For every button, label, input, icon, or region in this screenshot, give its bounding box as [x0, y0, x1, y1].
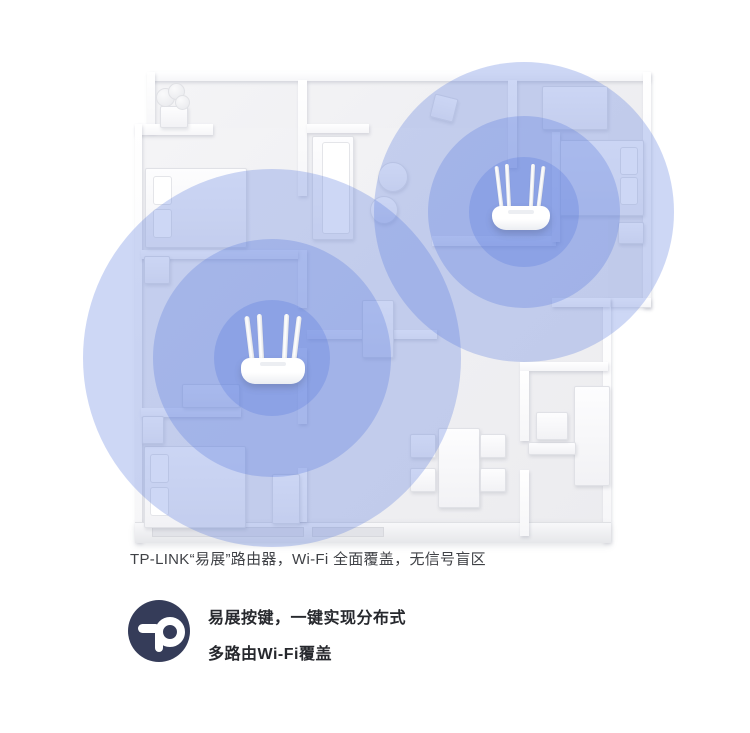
router-antenna-icon	[257, 314, 265, 362]
router-antenna-icon	[536, 166, 545, 208]
router-led-strip	[260, 362, 286, 366]
router-device-2	[492, 164, 550, 230]
pillow	[620, 147, 638, 175]
wardrobe	[542, 86, 608, 130]
page: { "caption": { "text": "TP-LINK“易展”路由器，W…	[0, 0, 750, 733]
router-antenna-icon	[282, 314, 290, 362]
wall-hall-1	[298, 80, 307, 196]
wall-outer-step	[610, 298, 651, 307]
dining-chair	[480, 468, 506, 492]
router-device-1	[241, 314, 305, 384]
pillow	[620, 177, 638, 205]
kitchen-counter	[528, 442, 576, 455]
balcony-window-2	[312, 527, 384, 537]
pouf	[378, 162, 408, 192]
router-body	[492, 206, 550, 230]
wall-kitchen-west-2	[520, 470, 529, 536]
dining-chair	[480, 434, 506, 458]
pillow	[150, 487, 169, 516]
wall-outer-right-upper	[643, 72, 651, 308]
wall-router-ledge	[432, 236, 556, 246]
pillow	[153, 176, 172, 205]
router-antenna-icon	[529, 164, 535, 208]
pillow	[153, 209, 172, 238]
wall-tv-panel	[362, 300, 394, 358]
tp-link-logo-icon	[128, 600, 190, 662]
router-body	[241, 358, 305, 384]
pouf	[370, 196, 398, 224]
dining-chair	[410, 468, 436, 492]
router-led-strip	[508, 210, 534, 214]
wall-outer-left	[135, 124, 142, 542]
dresser	[182, 384, 240, 408]
wall-kitchen-north	[520, 362, 608, 371]
cabinet	[272, 474, 300, 524]
wall-bedroom3-south	[552, 298, 610, 307]
router-antenna-icon	[244, 316, 255, 362]
sofa-seat	[322, 142, 350, 234]
wall-bedroom3-separator	[552, 132, 560, 242]
nightstand	[144, 256, 170, 284]
wall-living-stub	[307, 124, 369, 133]
dining-chair	[410, 434, 436, 458]
nightstand	[142, 416, 164, 444]
router-antenna-icon	[291, 316, 302, 362]
nightstand	[618, 222, 644, 244]
plant-icon	[175, 95, 190, 110]
pillow	[150, 454, 169, 483]
feature-line-1: 易展按键，一键实现分布式	[208, 604, 406, 628]
router-antenna-icon	[505, 164, 511, 208]
kitchen-appliance	[536, 412, 568, 440]
wall-outer-left-upper	[147, 72, 155, 132]
balcony-window	[152, 527, 304, 537]
wall-bedroom3-west	[508, 80, 517, 168]
caption-text: TP-LINK“易展”路由器，Wi-Fi 全面覆盖，无信号盲区	[130, 548, 486, 569]
wall-kitchen-west-1	[520, 371, 529, 441]
feature-line-2: 多路由Wi-Fi覆盖	[208, 640, 332, 664]
wall-outer-top	[150, 72, 650, 81]
wall-hall-2	[298, 250, 307, 308]
router-antenna-icon	[494, 166, 503, 208]
kitchen-cabinet	[574, 386, 610, 486]
dining-table	[438, 428, 480, 508]
logo-p-stem	[155, 630, 163, 652]
